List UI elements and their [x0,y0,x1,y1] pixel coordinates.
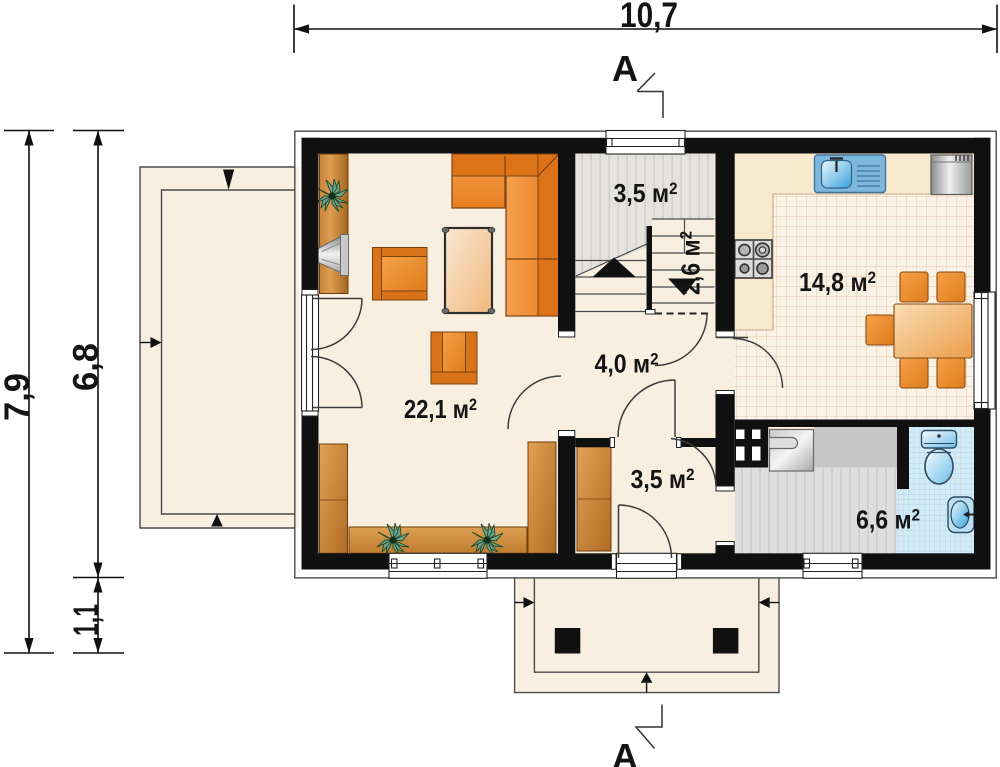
svg-text:6,6 м2: 6,6 м2 [856,505,920,535]
svg-text:14,8 м2: 14,8 м2 [799,267,876,297]
svg-text:A: A [612,736,638,767]
svg-text:A: A [612,48,638,89]
svg-text:4,0 м2: 4,0 м2 [595,349,659,379]
svg-text:6,8: 6,8 [67,343,106,391]
svg-text:7,9: 7,9 [0,373,37,421]
svg-text:22,1 м2: 22,1 м2 [404,394,477,424]
svg-text:3,5 м2: 3,5 м2 [631,464,695,494]
svg-text:10,7: 10,7 [620,0,678,35]
svg-text:1,1: 1,1 [67,604,106,636]
svg-text:3,5 м2: 3,5 м2 [614,178,678,208]
svg-text:2,6 м2: 2,6 м2 [676,231,706,295]
